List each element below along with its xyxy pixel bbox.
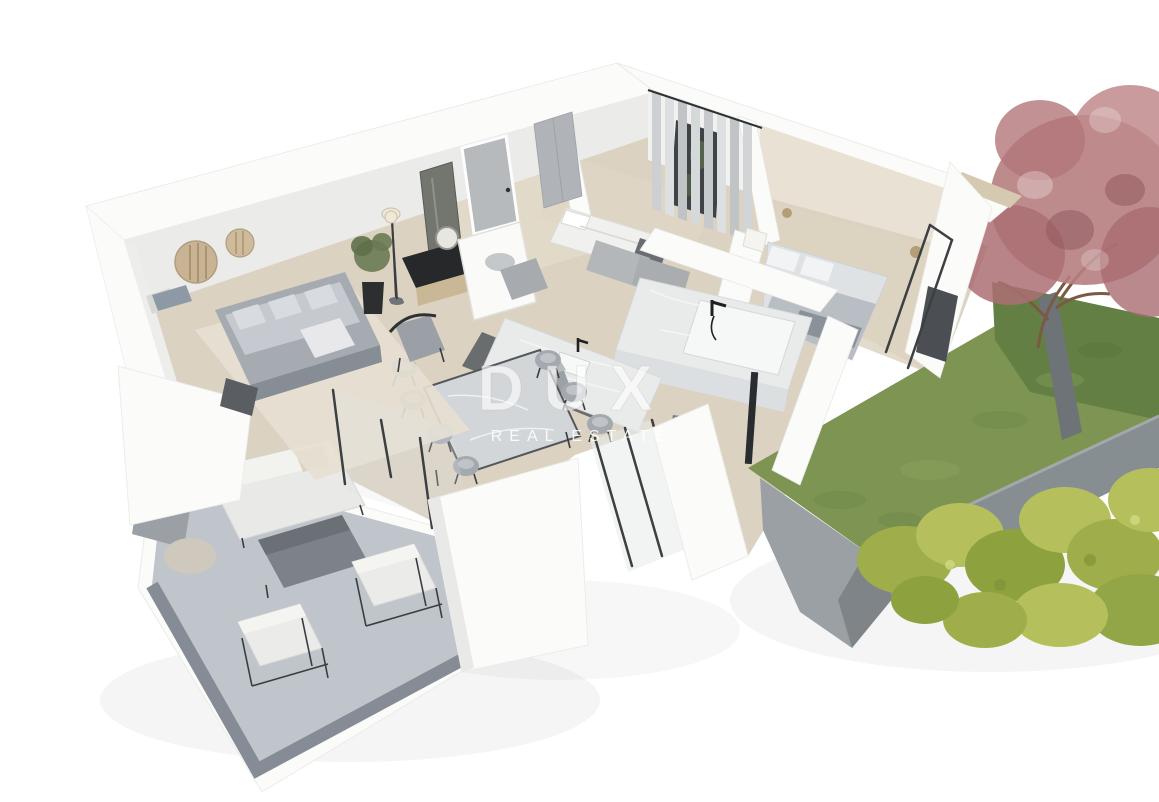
floor-plan-render: DUX REAL ESTATE	[0, 0, 1159, 802]
watermark-brand: DUX	[477, 352, 672, 424]
door-handle	[506, 188, 510, 192]
watermark-tagline: REAL ESTATE	[491, 428, 674, 445]
wall-lamp-left	[782, 208, 792, 218]
apartment-3d-render: DUX REAL ESTATE	[0, 0, 1159, 802]
round-mirror	[436, 227, 458, 249]
watermark: DUX REAL ESTATE	[477, 352, 673, 445]
terrace-pouf	[164, 538, 216, 574]
